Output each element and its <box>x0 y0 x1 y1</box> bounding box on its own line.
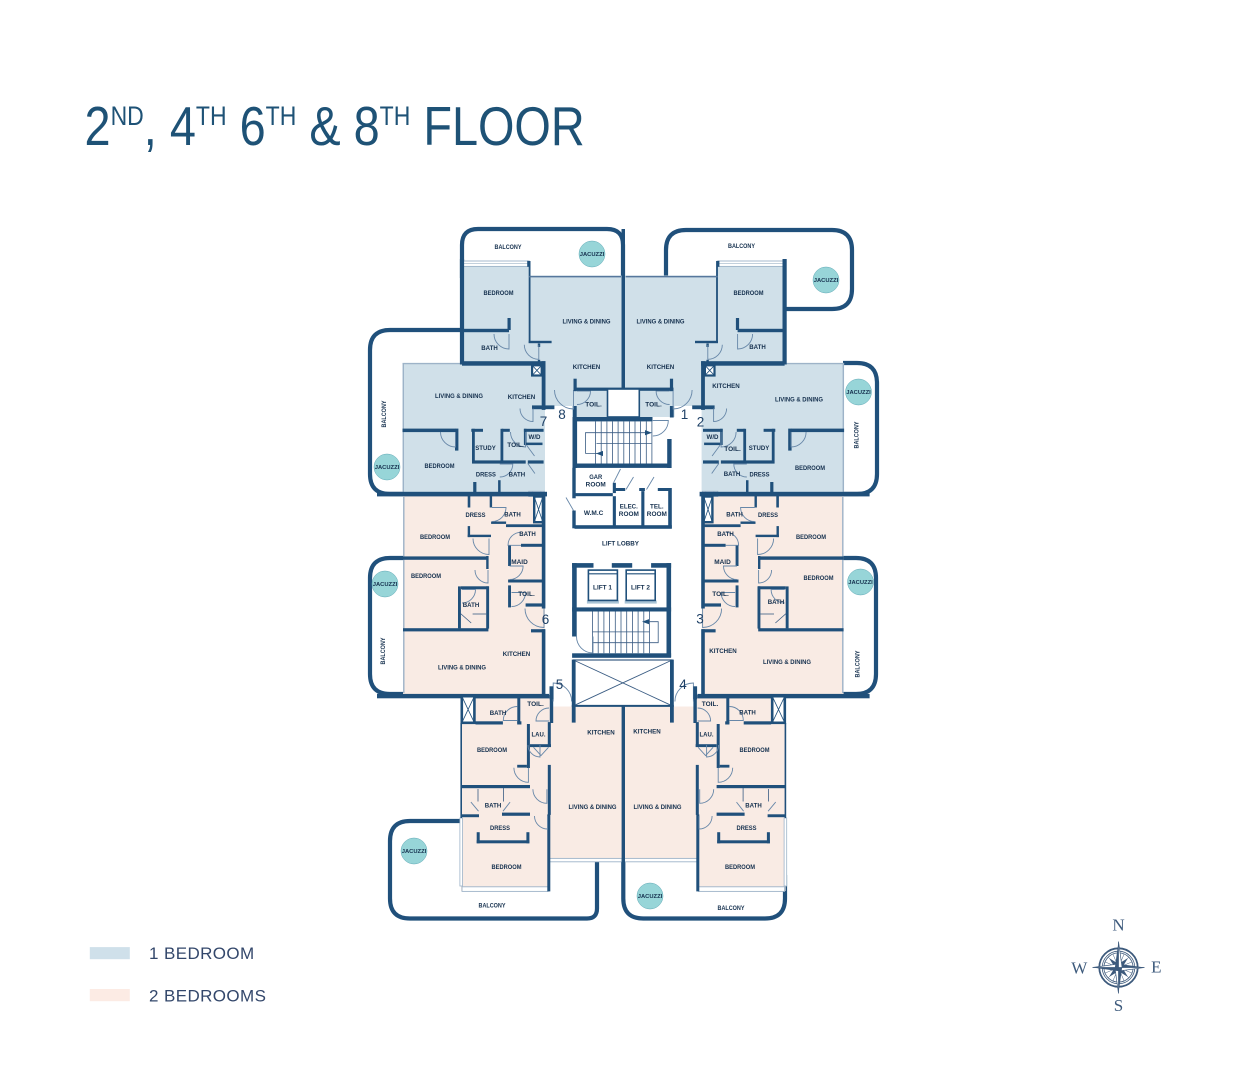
svg-text:BEDROOM: BEDROOM <box>734 290 764 297</box>
svg-text:KITCHEN: KITCHEN <box>647 364 675 371</box>
svg-text:BATH: BATH <box>724 471 741 478</box>
svg-text:6: 6 <box>542 612 550 627</box>
svg-text:1 BEDROOM: 1 BEDROOM <box>149 944 255 963</box>
svg-text:BATH: BATH <box>463 602 480 609</box>
svg-text:KITCHEN: KITCHEN <box>573 364 601 371</box>
svg-text:BATH: BATH <box>745 803 762 810</box>
svg-text:JACUZZI: JACUZZI <box>402 849 427 855</box>
svg-text:BEDROOM: BEDROOM <box>795 465 825 472</box>
svg-text:4: 4 <box>679 677 687 692</box>
svg-text:W: W <box>1071 958 1088 977</box>
svg-text:BEDROOM: BEDROOM <box>796 534 826 541</box>
svg-text:BEDROOM: BEDROOM <box>492 864 522 871</box>
svg-text:TOIL.: TOIL. <box>724 446 741 453</box>
svg-text:JACUZZI: JACUZZI <box>846 390 871 396</box>
svg-text:BATH: BATH <box>485 803 502 810</box>
svg-text:BATH: BATH <box>490 710 507 717</box>
svg-text:TOIL.: TOIL. <box>702 701 719 708</box>
svg-text:BATH: BATH <box>509 472 526 479</box>
svg-text:STUDY: STUDY <box>475 445 496 452</box>
svg-text:LIVING & DINING: LIVING & DINING <box>634 804 682 811</box>
svg-text:BATH: BATH <box>768 599 785 606</box>
svg-text:BATH: BATH <box>519 531 536 538</box>
svg-text:TOIL.: TOIL. <box>585 402 602 409</box>
svg-text:LIVING & DINING: LIVING & DINING <box>637 319 685 326</box>
svg-text:LAU.: LAU. <box>700 732 714 739</box>
svg-text:ROOM: ROOM <box>619 511 639 518</box>
svg-text:LIVING & DINING: LIVING & DINING <box>563 319 611 326</box>
svg-text:LAU.: LAU. <box>532 732 546 739</box>
svg-text:KITCHEN: KITCHEN <box>633 729 661 736</box>
svg-text:JACUZZI: JACUZZI <box>373 582 398 588</box>
svg-text:BATH: BATH <box>749 344 766 351</box>
svg-text:BALCONY: BALCONY <box>855 650 862 678</box>
svg-text:JACUZZI: JACUZZI <box>848 580 873 586</box>
svg-text:LIFT LOBBY: LIFT LOBBY <box>602 541 640 548</box>
svg-text:BEDROOM: BEDROOM <box>425 463 455 470</box>
svg-text:5: 5 <box>556 677 564 692</box>
svg-text:STUDY: STUDY <box>749 445 770 452</box>
svg-text:JACUZZI: JACUZZI <box>814 278 839 284</box>
svg-text:JACUZZI: JACUZZI <box>580 252 605 258</box>
svg-text:BALCONY: BALCONY <box>495 244 523 251</box>
svg-text:KITCHEN: KITCHEN <box>587 730 615 737</box>
svg-text:BALCONY: BALCONY <box>728 243 756 250</box>
svg-text:DRESS: DRESS <box>490 825 510 832</box>
svg-text:W.M.C: W.M.C <box>584 510 604 517</box>
svg-text:MAID: MAID <box>511 559 528 566</box>
svg-text:LIVING & DINING: LIVING & DINING <box>435 393 483 400</box>
svg-text:BEDROOM: BEDROOM <box>804 575 834 582</box>
svg-text:BEDROOM: BEDROOM <box>477 747 507 754</box>
svg-text:W/D: W/D <box>707 434 720 441</box>
svg-text:2 BEDROOMS: 2 BEDROOMS <box>149 987 266 1006</box>
svg-text:BALCONY: BALCONY <box>380 637 387 665</box>
svg-text:E: E <box>1151 958 1161 977</box>
svg-text:LIVING & DINING: LIVING & DINING <box>763 659 811 666</box>
svg-text:LIFT 2: LIFT 2 <box>631 585 651 592</box>
svg-text:DRESS: DRESS <box>476 472 496 479</box>
svg-text:1: 1 <box>681 407 689 422</box>
svg-text:BALCONY: BALCONY <box>479 903 507 910</box>
svg-text:ELEC.: ELEC. <box>620 503 638 510</box>
svg-text:LIFT 1: LIFT 1 <box>593 585 613 592</box>
svg-text:DRESS: DRESS <box>750 472 770 479</box>
svg-text:S: S <box>1114 996 1123 1015</box>
svg-text:KITCHEN: KITCHEN <box>712 383 740 390</box>
svg-text:BATH: BATH <box>481 345 498 352</box>
svg-text:BEDROOM: BEDROOM <box>725 864 755 871</box>
svg-text:TEL.: TEL. <box>650 503 664 510</box>
svg-text:BALCONY: BALCONY <box>718 905 746 912</box>
svg-text:BATH: BATH <box>739 710 756 717</box>
svg-text:8: 8 <box>558 407 566 422</box>
svg-text:TOIL.: TOIL. <box>507 442 524 449</box>
svg-text:7: 7 <box>540 414 548 429</box>
svg-text:DRESS: DRESS <box>758 512 778 519</box>
svg-text:W/D: W/D <box>529 434 542 441</box>
svg-text:LIVING & DINING: LIVING & DINING <box>775 397 823 404</box>
svg-text:ROOM: ROOM <box>647 511 667 518</box>
svg-text:LIVING & DINING: LIVING & DINING <box>438 665 486 672</box>
svg-text:2: 2 <box>697 415 705 430</box>
svg-text:TOIL.: TOIL. <box>527 701 544 708</box>
svg-text:BALCONY: BALCONY <box>854 421 861 449</box>
svg-text:TOIL.: TOIL. <box>645 402 662 409</box>
svg-text:KITCHEN: KITCHEN <box>508 394 536 401</box>
svg-text:BATH: BATH <box>726 512 743 519</box>
svg-text:N: N <box>1112 916 1124 935</box>
svg-text:BEDROOM: BEDROOM <box>740 747 770 754</box>
svg-text:ROOM: ROOM <box>586 482 606 489</box>
svg-text:BATH: BATH <box>717 531 734 538</box>
svg-text:BALCONY: BALCONY <box>381 400 388 428</box>
svg-text:2ND, 4TH 6TH & 8TH FLOOR: 2ND, 4TH 6TH & 8TH FLOOR <box>85 95 585 156</box>
svg-text:DRESS: DRESS <box>737 825 757 832</box>
svg-text:GAR: GAR <box>589 474 603 481</box>
svg-text:BATH: BATH <box>504 512 521 519</box>
svg-text:JACUZZI: JACUZZI <box>638 894 663 900</box>
svg-text:3: 3 <box>696 612 704 627</box>
svg-text:KITCHEN: KITCHEN <box>503 651 531 658</box>
svg-text:BEDROOM: BEDROOM <box>411 573 441 580</box>
svg-text:DRESS: DRESS <box>466 512 486 519</box>
svg-text:TOIL.: TOIL. <box>518 591 535 598</box>
svg-text:MAID: MAID <box>714 559 731 566</box>
svg-text:KITCHEN: KITCHEN <box>709 648 737 655</box>
svg-text:TOIL.: TOIL. <box>712 591 729 598</box>
svg-text:JACUZZI: JACUZZI <box>375 465 400 471</box>
svg-text:BEDROOM: BEDROOM <box>420 534 450 541</box>
svg-text:LIVING & DINING: LIVING & DINING <box>569 804 617 811</box>
svg-text:BEDROOM: BEDROOM <box>484 290 514 297</box>
